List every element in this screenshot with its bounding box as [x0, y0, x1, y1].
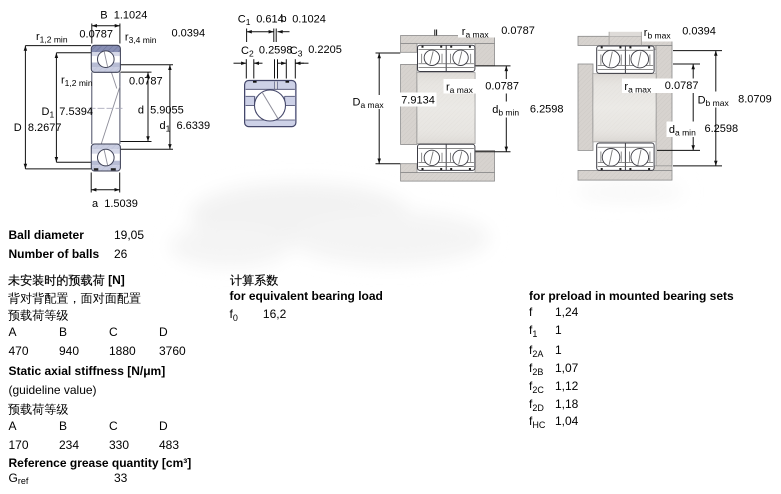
svg-text:r1,2 min: r1,2 min — [61, 75, 93, 89]
svg-text:d1: d1 — [160, 120, 171, 134]
svg-text:0.0394: 0.0394 — [682, 26, 716, 38]
svg-text:0.0787: 0.0787 — [501, 25, 535, 37]
svg-text:B 1.1024: B 1.1024 — [100, 10, 147, 22]
svg-text:7.5394: 7.5394 — [59, 106, 93, 118]
svg-text:D 8.2677: D 8.2677 — [14, 122, 62, 134]
svg-text:0.0787: 0.0787 — [79, 29, 113, 41]
svg-text:6.2598: 6.2598 — [705, 123, 739, 135]
svg-text:C2: C2 — [241, 45, 254, 59]
svg-text:6.2598: 6.2598 — [530, 104, 564, 116]
svg-text:0.1024: 0.1024 — [292, 14, 326, 26]
svg-text:6.6339: 6.6339 — [177, 120, 211, 132]
svg-text:7.9134: 7.9134 — [401, 95, 435, 107]
svg-text:8.0709: 8.0709 — [738, 93, 772, 105]
svg-text:0.0787: 0.0787 — [665, 80, 699, 92]
svg-text:0.0787: 0.0787 — [129, 76, 163, 88]
svg-text:C1: C1 — [238, 14, 251, 28]
svg-text:0.0394: 0.0394 — [172, 28, 206, 40]
svg-text:0.2205: 0.2205 — [308, 44, 342, 56]
svg-text:D1: D1 — [42, 106, 55, 120]
svg-text:r3,4 min: r3,4 min — [125, 32, 157, 46]
svg-text:C3: C3 — [290, 45, 303, 59]
svg-text:0.2598: 0.2598 — [259, 45, 293, 57]
svg-text:a 1.5039: a 1.5039 — [92, 198, 138, 210]
svg-text:0.0787: 0.0787 — [485, 81, 519, 93]
svg-text:b: b — [281, 13, 287, 25]
svg-text:r1,2 min: r1,2 min — [36, 31, 68, 45]
svg-text:d 5.9055: d 5.9055 — [138, 105, 184, 117]
